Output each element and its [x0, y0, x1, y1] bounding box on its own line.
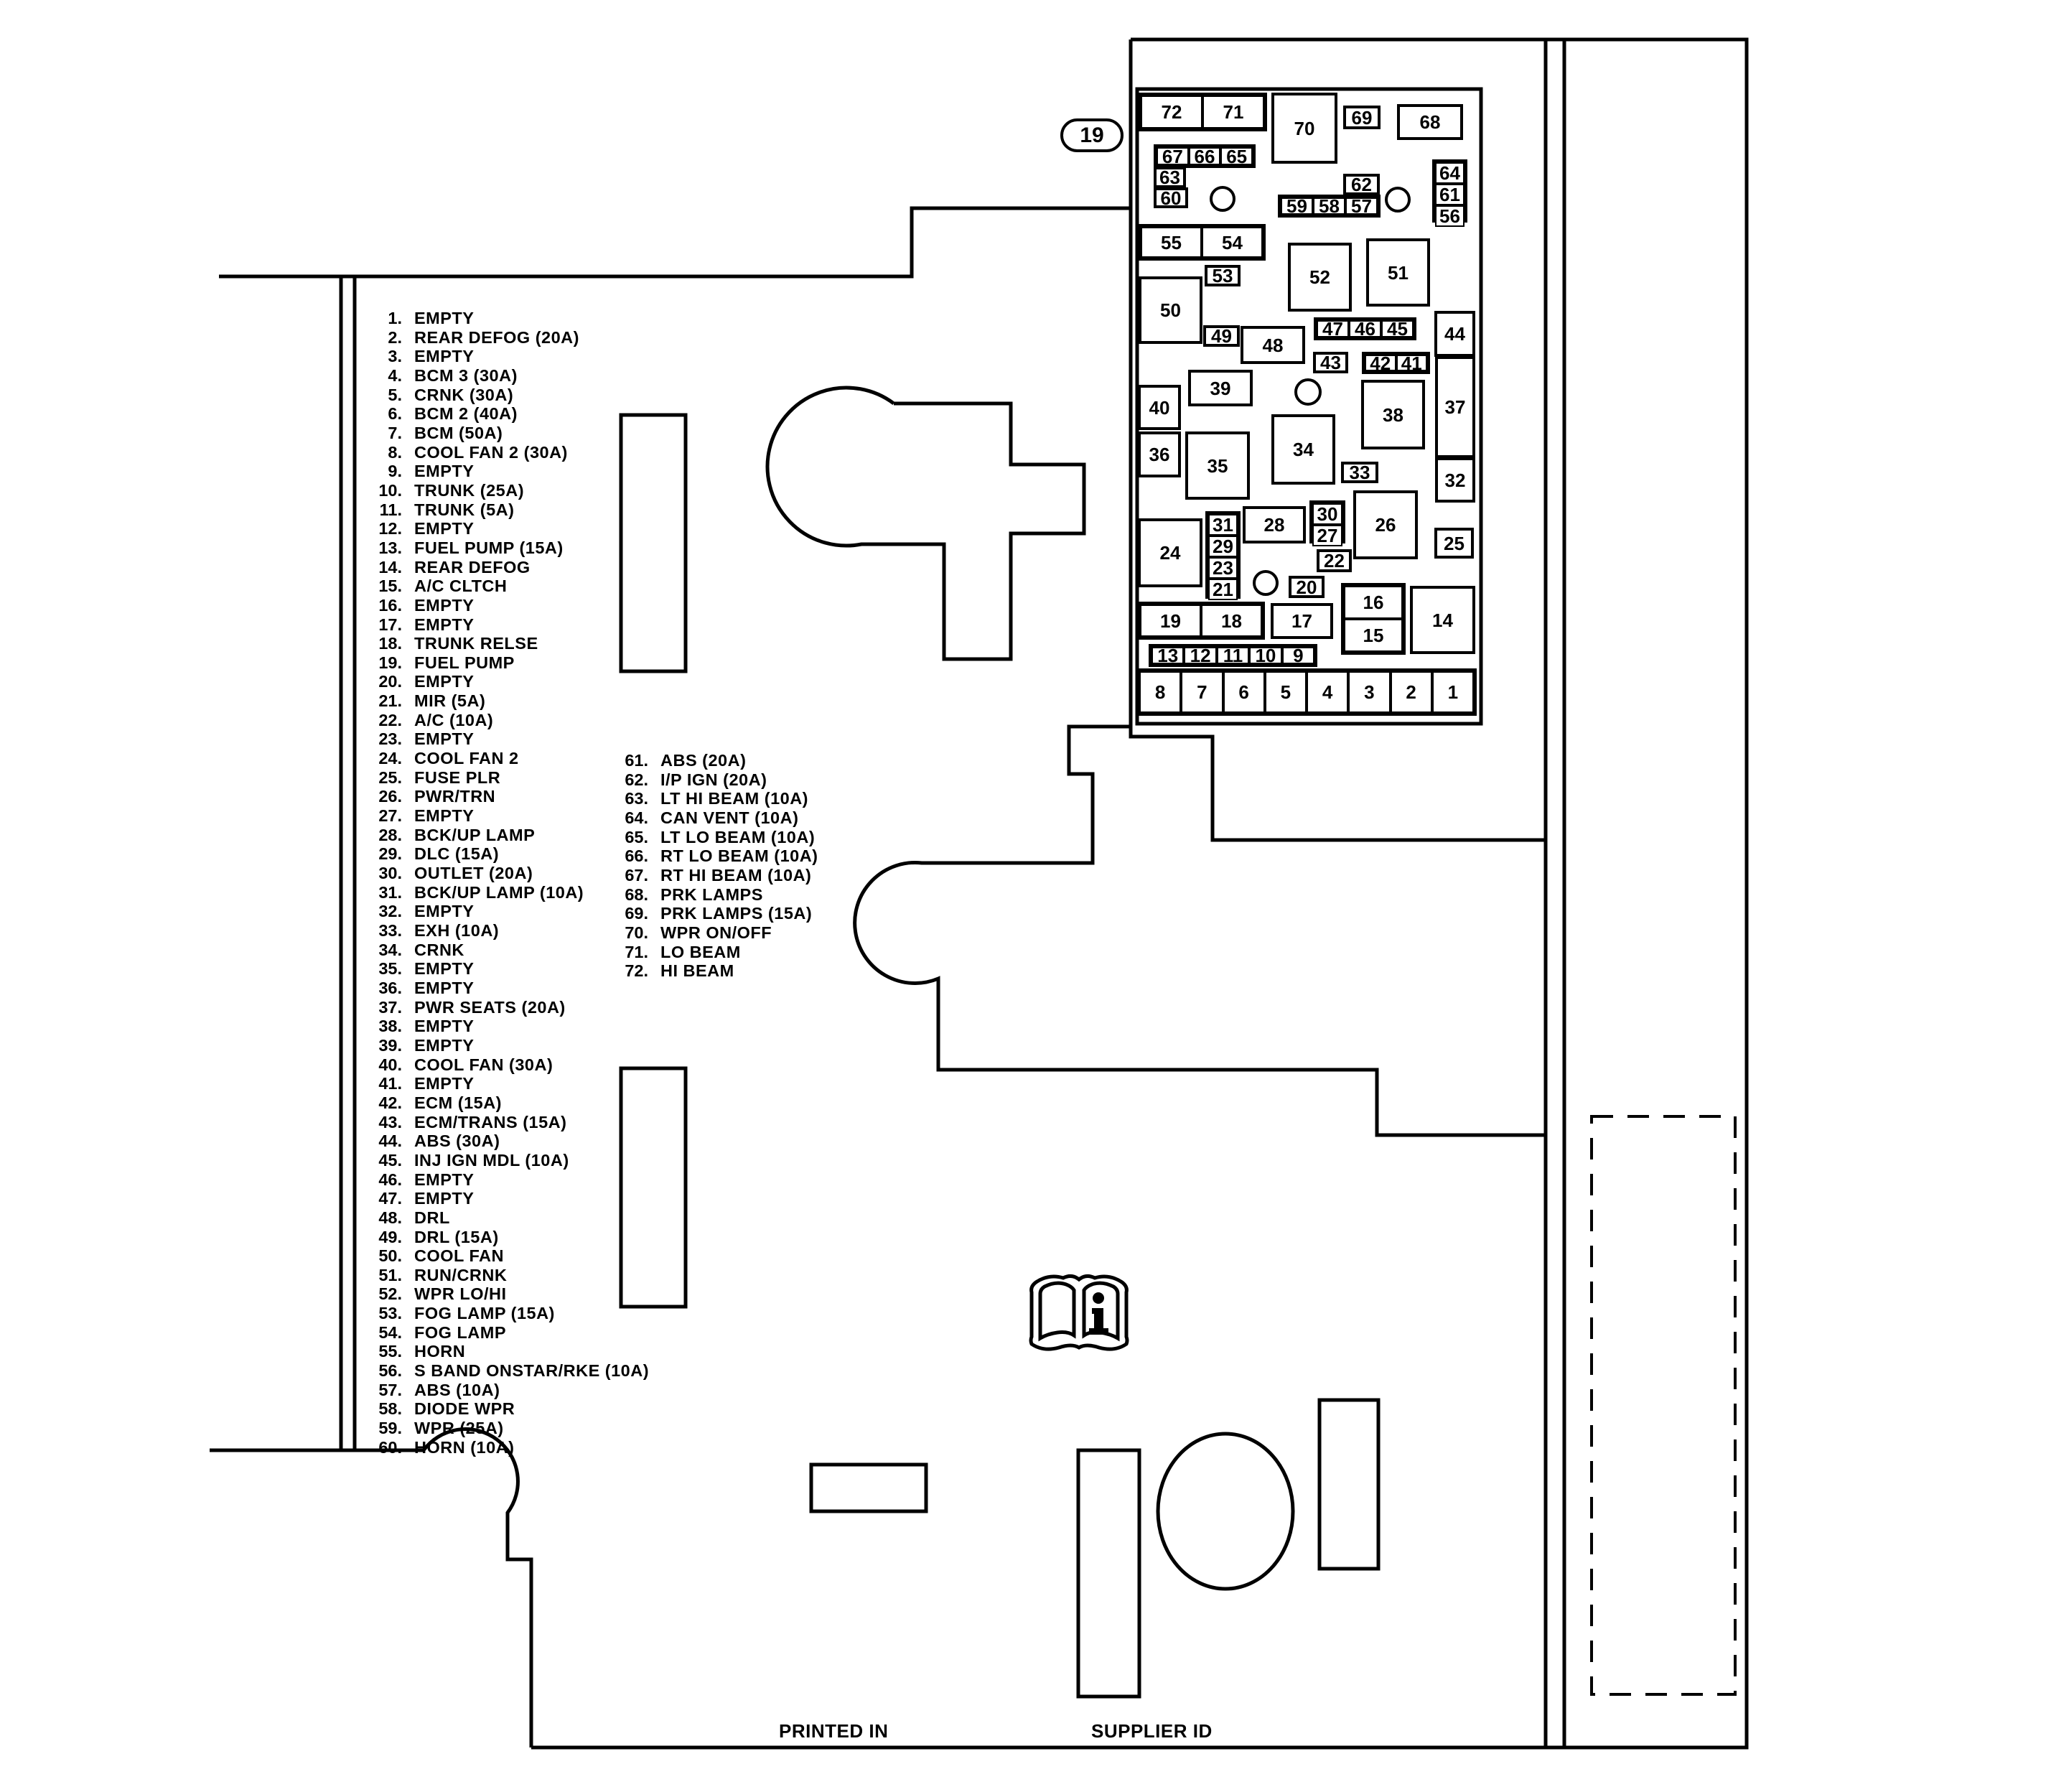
- fuse-71: 71: [1202, 95, 1264, 129]
- legend-item-label: EMPTY: [414, 806, 474, 826]
- legend-item-label: HORN: [414, 1342, 465, 1361]
- legend-item: 36.EMPTY: [363, 979, 649, 998]
- legend-item-number: 51.: [363, 1266, 402, 1285]
- fuse-46: 46: [1349, 320, 1381, 337]
- legend-item-number: 47.: [363, 1189, 402, 1208]
- legend-item: 14.REAR DEFOG: [363, 558, 649, 577]
- legend-item-label: A/C (10A): [414, 711, 493, 730]
- fuse-group: 1918: [1137, 602, 1265, 640]
- legend-item-label: BCM 2 (40A): [414, 404, 518, 424]
- legend-item-label: EMPTY: [414, 902, 474, 921]
- legend-item-label: TRUNK (5A): [414, 500, 514, 520]
- legend-item: 15.A/C CLTCH: [363, 577, 649, 596]
- legend-item-label: EMPTY: [414, 1036, 474, 1055]
- legend-item-label: S BAND ONSTAR/RKE (10A): [414, 1361, 649, 1381]
- legend-item-number: 1.: [363, 309, 402, 328]
- legend-item-number: 36.: [363, 979, 402, 998]
- legend-item: 5.CRNK (30A): [363, 386, 649, 405]
- legend-item-label: ECM (15A): [414, 1093, 502, 1113]
- legend-item: 26.PWR/TRN: [363, 787, 649, 806]
- legend-item-label: TRUNK RELSE: [414, 634, 538, 653]
- legend-item-label: COOL FAN: [414, 1246, 504, 1266]
- fuse-55: 55: [1141, 227, 1202, 258]
- legend-item: 29.DLC (15A): [363, 844, 649, 864]
- legend-item: 53.FOG LAMP (15A): [363, 1304, 649, 1323]
- legend-item-label: HORN (10A): [414, 1438, 514, 1457]
- owners-manual-icon: [1031, 1276, 1127, 1349]
- legend-item: 9.EMPTY: [363, 462, 649, 481]
- legend-item-label: EMPTY: [414, 979, 474, 998]
- fuse-48: 48: [1241, 326, 1305, 364]
- legend-item: 54.FOG LAMP: [363, 1323, 649, 1343]
- legend-item-label: TRUNK (25A): [414, 481, 524, 500]
- fuse-70: 70: [1271, 93, 1337, 164]
- legend-item-label: MIR (5A): [414, 691, 485, 711]
- legend-item: 58.DIODE WPR: [363, 1399, 649, 1419]
- legend-item: 51.RUN/CRNK: [363, 1266, 649, 1285]
- legend-item: 31.BCK/UP LAMP (10A): [363, 883, 649, 902]
- legend-item: 57.ABS (10A): [363, 1381, 649, 1400]
- legend-item-label: CRNK (30A): [414, 386, 513, 405]
- fuse-44: 44: [1434, 311, 1475, 357]
- fuse-38: 38: [1361, 380, 1425, 449]
- fuse-group: 5554: [1138, 224, 1266, 261]
- legend-item: 27.EMPTY: [363, 806, 649, 826]
- legend-item-label: PRK LAMPS: [660, 885, 763, 905]
- legend-item-number: 21.: [363, 691, 402, 711]
- legend-item-number: 33.: [363, 921, 402, 941]
- legend-item-number: 41.: [363, 1074, 402, 1093]
- fuse-60: 60: [1154, 187, 1188, 208]
- legend-item-label: COOL FAN (30A): [414, 1055, 553, 1075]
- fuse-group: 31292321: [1205, 511, 1241, 599]
- legend-item: 66.RT LO BEAM (10A): [609, 846, 818, 866]
- legend-item: 40.COOL FAN (30A): [363, 1055, 649, 1075]
- legend-item-label: EMPTY: [414, 596, 474, 615]
- dashed-service-area: [1592, 1116, 1735, 1694]
- legend-item: 3.EMPTY: [363, 347, 649, 366]
- legend-item: 67.RT HI BEAM (10A): [609, 866, 818, 885]
- legend-item-number: 62.: [609, 770, 648, 790]
- panel-top-edge: [219, 208, 1131, 276]
- fuse-block-diagram-page: 19 1.EMPTY2.REAR DEFOG (20A)3.EMPTY4.BCM…: [0, 0, 2046, 1792]
- legend-item-number: 5.: [363, 386, 402, 405]
- legend-item-label: ABS (20A): [660, 751, 746, 770]
- legend-item-label: EMPTY: [414, 347, 474, 366]
- legend-item-number: 18.: [363, 634, 402, 653]
- fuse-43: 43: [1313, 352, 1348, 373]
- legend-item: 4.BCM 3 (30A): [363, 366, 649, 386]
- legend-item: 37.PWR SEATS (20A): [363, 998, 649, 1017]
- legend-item: 70.WPR ON/OFF: [609, 923, 818, 943]
- legend-item-number: 28.: [363, 826, 402, 845]
- legend-item-number: 13.: [363, 538, 402, 558]
- legend-item: 24.COOL FAN 2: [363, 749, 649, 768]
- legend-item: 8.COOL FAN 2 (30A): [363, 443, 649, 462]
- fuse-33: 33: [1341, 462, 1378, 483]
- legend-item: 38.EMPTY: [363, 1017, 649, 1036]
- legend-item: 12.EMPTY: [363, 519, 649, 538]
- legend-item-number: 25.: [363, 768, 402, 788]
- legend-item-number: 11.: [363, 500, 402, 520]
- fuse-59: 59: [1281, 197, 1313, 215]
- legend-item: 48.DRL: [363, 1208, 649, 1228]
- legend-item: 60.HORN (10A): [363, 1438, 649, 1457]
- legend-item-number: 52.: [363, 1284, 402, 1304]
- legend-item-number: 72.: [609, 961, 648, 981]
- fusebox-mount-hole-icon: [1210, 186, 1235, 212]
- legend-item-label: RT LO BEAM (10A): [660, 846, 818, 866]
- legend-item-label: COOL FAN 2: [414, 749, 519, 768]
- legend-item: 62.I/P IGN (20A): [609, 770, 818, 790]
- legend-item-number: 46.: [363, 1170, 402, 1190]
- fusebox-mount-hole-icon: [1385, 187, 1411, 213]
- legend-item-label: CRNK: [414, 941, 464, 960]
- legend-item-number: 30.: [363, 864, 402, 883]
- legend-item-number: 6.: [363, 404, 402, 424]
- fuse-5: 5: [1265, 671, 1307, 713]
- legend-item-label: HI BEAM: [660, 961, 734, 981]
- legend-item-label: DLC (15A): [414, 844, 499, 864]
- legend-item-number: 63.: [609, 789, 648, 808]
- legend-item: 71.LO BEAM: [609, 943, 818, 962]
- fuse-42: 42: [1365, 355, 1396, 371]
- legend-item: 52.WPR LO/HI: [363, 1284, 649, 1304]
- legend-item-label: A/C CLTCH: [414, 577, 507, 596]
- fuse-72: 72: [1141, 95, 1202, 129]
- fuse-7: 7: [1181, 671, 1223, 713]
- legend-item-label: WPR LO/HI: [414, 1284, 507, 1304]
- legend-item-number: 44.: [363, 1131, 402, 1151]
- fuse-56: 56: [1435, 205, 1465, 227]
- fuse-34: 34: [1271, 414, 1335, 485]
- fusebox-mount-hole-icon: [1294, 378, 1322, 406]
- legend-item: 21.MIR (5A): [363, 691, 649, 711]
- legend-item-label: EMPTY: [414, 672, 474, 691]
- legend-item-label: EMPTY: [414, 1170, 474, 1190]
- fuse-group: 595857: [1278, 195, 1381, 218]
- legend-item: 35.EMPTY: [363, 959, 649, 979]
- legend-item-label: BCM (50A): [414, 424, 503, 443]
- legend-item-label: ABS (30A): [414, 1131, 500, 1151]
- legend-item: 47.EMPTY: [363, 1189, 649, 1208]
- legend-item-label: EMPTY: [414, 615, 474, 635]
- legend-item-number: 61.: [609, 751, 648, 770]
- fuse-47: 47: [1317, 320, 1349, 337]
- fuse-68: 68: [1397, 104, 1463, 140]
- fuse-64: 64: [1435, 162, 1465, 184]
- fusebox-mount-hole-icon: [1253, 570, 1279, 596]
- legend-item-number: 58.: [363, 1399, 402, 1419]
- legend-item-number: 7.: [363, 424, 402, 443]
- fuse-31: 31: [1208, 514, 1238, 536]
- fuse-14: 14: [1410, 586, 1475, 654]
- legend-item-number: 56.: [363, 1361, 402, 1381]
- fuse-22: 22: [1317, 549, 1352, 572]
- legend-item: 17.EMPTY: [363, 615, 649, 635]
- legend-item-number: 40.: [363, 1055, 402, 1075]
- legend-item: 46.EMPTY: [363, 1170, 649, 1190]
- legend-item-number: 71.: [609, 943, 648, 962]
- legend-item-number: 8.: [363, 443, 402, 462]
- legend-item: 43.ECM/TRANS (15A): [363, 1113, 649, 1132]
- fuse-24: 24: [1138, 518, 1202, 587]
- legend-item-label: RUN/CRNK: [414, 1266, 507, 1285]
- legend-item-number: 57.: [363, 1381, 402, 1400]
- fuse-25: 25: [1434, 528, 1474, 559]
- fuse-group: 131211109: [1149, 644, 1317, 667]
- legend-item-number: 68.: [609, 885, 648, 905]
- legend-item-label: CAN VENT (10A): [660, 808, 798, 828]
- legend-item: 23.EMPTY: [363, 729, 649, 749]
- legend-item-label: REAR DEFOG: [414, 558, 531, 577]
- fuse-1: 1: [1432, 671, 1474, 713]
- fuse-8: 8: [1139, 671, 1181, 713]
- legend-item: 30.OUTLET (20A): [363, 864, 649, 883]
- legend-item-number: 50.: [363, 1246, 402, 1266]
- legend-item-label: LT LO BEAM (10A): [660, 828, 815, 847]
- legend-item-label: BCK/UP LAMP (10A): [414, 883, 584, 902]
- legend-item: 11.TRUNK (5A): [363, 500, 649, 520]
- fuse-19: 19: [1140, 605, 1201, 637]
- legend-item-number: 34.: [363, 941, 402, 960]
- fuse-32: 32: [1435, 457, 1475, 503]
- legend-item: 18.TRUNK RELSE: [363, 634, 649, 653]
- fuse-20: 20: [1289, 576, 1325, 598]
- legend-item-number: 55.: [363, 1342, 402, 1361]
- fuse-57: 57: [1345, 197, 1378, 215]
- fuse-21: 21: [1208, 579, 1238, 600]
- fuse-18: 18: [1201, 605, 1262, 637]
- legend-item: 56.S BAND ONSTAR/RKE (10A): [363, 1361, 649, 1381]
- fuse-65: 65: [1220, 147, 1253, 165]
- legend-item-number: 45.: [363, 1151, 402, 1170]
- legend-item-number: 9.: [363, 462, 402, 481]
- legend-item-number: 67.: [609, 866, 648, 885]
- fuse-group: 7271: [1138, 93, 1267, 131]
- legend-item-number: 19.: [363, 653, 402, 673]
- keyhole-cutout-upper: [767, 388, 1084, 659]
- legend-item-number: 43.: [363, 1113, 402, 1132]
- legend-item-label: DRL (15A): [414, 1228, 499, 1247]
- legend-item-number: 10.: [363, 481, 402, 500]
- legend-item: 72.HI BEAM: [609, 961, 818, 981]
- fuse-26: 26: [1353, 490, 1418, 559]
- panel-bottom-left-edge: [210, 1429, 531, 1747]
- legend-item: 64.CAN VENT (10A): [609, 808, 818, 828]
- fuse-45: 45: [1381, 320, 1414, 337]
- legend-item-number: 35.: [363, 959, 402, 979]
- legend-item-number: 39.: [363, 1036, 402, 1055]
- legend-item-label: COOL FAN 2 (30A): [414, 443, 568, 462]
- legend-item-label: EXH (10A): [414, 921, 499, 941]
- legend-item-number: 42.: [363, 1093, 402, 1113]
- fuse-13: 13: [1152, 647, 1184, 664]
- fuse-40: 40: [1138, 385, 1181, 430]
- legend-item-number: 27.: [363, 806, 402, 826]
- legend-item-label: INJ IGN MDL (10A): [414, 1151, 569, 1170]
- legend-item: 28.BCK/UP LAMP: [363, 826, 649, 845]
- mount-hole-circle: [1158, 1434, 1293, 1589]
- legend-item: 7.BCM (50A): [363, 424, 649, 443]
- fuse-group: 4241: [1362, 352, 1430, 374]
- legend-item-label: EMPTY: [414, 1074, 474, 1093]
- legend-item-label: EMPTY: [414, 1189, 474, 1208]
- fuse-62: 62: [1343, 174, 1380, 195]
- legend-item-number: 4.: [363, 366, 402, 386]
- mount-slot-bottom-mid: [1078, 1450, 1139, 1697]
- legend-item: 45.INJ IGN MDL (10A): [363, 1151, 649, 1170]
- legend-item: 55.HORN: [363, 1342, 649, 1361]
- fuse-53: 53: [1205, 265, 1241, 286]
- legend-item: 2.REAR DEFOG (20A): [363, 328, 649, 347]
- fuse-63: 63: [1154, 167, 1186, 188]
- legend-item-number: 15.: [363, 577, 402, 596]
- legend-item-label: ABS (10A): [414, 1381, 500, 1400]
- legend-item-label: WPR (25A): [414, 1419, 504, 1438]
- legend-item: 13.FUEL PUMP (15A): [363, 538, 649, 558]
- fuse-group: 1615: [1341, 583, 1406, 655]
- legend-item-label: EMPTY: [414, 309, 474, 328]
- legend-item-label: LO BEAM: [660, 943, 741, 962]
- legend-item: 20.EMPTY: [363, 672, 649, 691]
- figure-number-callout: 19: [1060, 118, 1124, 152]
- fuse-51: 51: [1366, 238, 1430, 307]
- fuse-52: 52: [1288, 243, 1352, 312]
- legend-item-label: LT HI BEAM (10A): [660, 789, 808, 808]
- legend-item-number: 69.: [609, 904, 648, 923]
- legend-item-number: 29.: [363, 844, 402, 864]
- mount-slot-bottom-right: [1319, 1400, 1378, 1569]
- printed-in-label: PRINTED IN: [779, 1720, 888, 1742]
- legend-item: 50.COOL FAN: [363, 1246, 649, 1266]
- legend-item: 22.A/C (10A): [363, 711, 649, 730]
- legend-item-number: 48.: [363, 1208, 402, 1228]
- legend-item-number: 26.: [363, 787, 402, 806]
- legend-item-label: OUTLET (20A): [414, 864, 533, 883]
- legend-item: 59.WPR (25A): [363, 1419, 649, 1438]
- supplier-id-label: SUPPLIER ID: [1091, 1720, 1213, 1742]
- legend-item: 44.ABS (30A): [363, 1131, 649, 1151]
- legend-item-number: 59.: [363, 1419, 402, 1438]
- legend-item-label: FOG LAMP: [414, 1323, 506, 1343]
- fuse-legend-column-1: 1.EMPTY2.REAR DEFOG (20A)3.EMPTY4.BCM 3 …: [363, 309, 649, 1457]
- legend-item: 42.ECM (15A): [363, 1093, 649, 1113]
- legend-item: 65.LT LO BEAM (10A): [609, 828, 818, 847]
- legend-item: 39.EMPTY: [363, 1036, 649, 1055]
- legend-item-label: EMPTY: [414, 959, 474, 979]
- fuse-15: 15: [1344, 619, 1403, 652]
- legend-item: 16.EMPTY: [363, 596, 649, 615]
- legend-item-label: REAR DEFOG (20A): [414, 328, 579, 347]
- fuse-12: 12: [1184, 647, 1216, 664]
- legend-item: 63.LT HI BEAM (10A): [609, 789, 818, 808]
- fuse-28: 28: [1243, 506, 1306, 543]
- legend-item: 61.ABS (20A): [609, 751, 818, 770]
- legend-item-label: EMPTY: [414, 462, 474, 481]
- legend-item-label: RT HI BEAM (10A): [660, 866, 811, 885]
- legend-item: 32.EMPTY: [363, 902, 649, 921]
- legend-item-number: 32.: [363, 902, 402, 921]
- fuse-legend-column-2: 61.ABS (20A)62.I/P IGN (20A)63.LT HI BEA…: [609, 751, 818, 981]
- legend-item: 19.FUEL PUMP: [363, 653, 649, 673]
- legend-item-label: DIODE WPR: [414, 1399, 515, 1419]
- legend-item-label: FUEL PUMP (15A): [414, 538, 564, 558]
- legend-item: 25.FUSE PLR: [363, 768, 649, 788]
- legend-item-number: 2.: [363, 328, 402, 347]
- fuse-9: 9: [1282, 647, 1314, 664]
- legend-item-label: BCM 3 (30A): [414, 366, 518, 386]
- legend-item-label: EMPTY: [414, 729, 474, 749]
- fuse-3: 3: [1348, 671, 1390, 713]
- fuse-23: 23: [1208, 557, 1238, 579]
- legend-item-label: BCK/UP LAMP: [414, 826, 535, 845]
- legend-item-number: 64.: [609, 808, 648, 828]
- legend-item-number: 24.: [363, 749, 402, 768]
- legend-item-number: 12.: [363, 519, 402, 538]
- legend-item: 1.EMPTY: [363, 309, 649, 328]
- fuse-66: 66: [1189, 147, 1221, 165]
- fuse-49: 49: [1203, 325, 1240, 347]
- fuse-2: 2: [1391, 671, 1432, 713]
- fuse-54: 54: [1202, 227, 1263, 258]
- fuse-27: 27: [1312, 525, 1342, 546]
- fuse-58: 58: [1313, 197, 1345, 215]
- legend-item: 69.PRK LAMPS (15A): [609, 904, 818, 923]
- fuse-39: 39: [1188, 370, 1253, 406]
- fuse-group: 676665: [1154, 144, 1256, 168]
- fuse-group: 3027: [1309, 500, 1345, 543]
- legend-item-number: 22.: [363, 711, 402, 730]
- fuse-10: 10: [1249, 647, 1281, 664]
- fuse-group: 474645: [1314, 317, 1416, 340]
- legend-item-number: 54.: [363, 1323, 402, 1343]
- legend-item-label: EMPTY: [414, 1017, 474, 1036]
- fuse-41: 41: [1396, 355, 1428, 371]
- legend-item-label: FOG LAMP (15A): [414, 1304, 555, 1323]
- legend-item: 68.PRK LAMPS: [609, 885, 818, 905]
- legend-item: 33.EXH (10A): [363, 921, 649, 941]
- fuse-17: 17: [1271, 603, 1333, 639]
- legend-item-number: 37.: [363, 998, 402, 1017]
- fuse-16: 16: [1344, 586, 1403, 619]
- fuse-6: 6: [1223, 671, 1265, 713]
- fuse-61: 61: [1435, 184, 1465, 205]
- legend-item-number: 23.: [363, 729, 402, 749]
- fuse-69: 69: [1343, 106, 1381, 129]
- legend-item-number: 14.: [363, 558, 402, 577]
- legend-item-number: 17.: [363, 615, 402, 635]
- fuse-29: 29: [1208, 536, 1238, 557]
- legend-item: 41.EMPTY: [363, 1074, 649, 1093]
- legend-item-number: 3.: [363, 347, 402, 366]
- fuse-group: 87654321: [1136, 668, 1477, 716]
- panel-outline-artwork: [0, 0, 2046, 1792]
- fuse-67: 67: [1157, 147, 1189, 165]
- legend-item-number: 70.: [609, 923, 648, 943]
- legend-item: 6.BCM 2 (40A): [363, 404, 649, 424]
- mount-slot-bottom-small: [811, 1465, 926, 1511]
- keyhole-cutout-lower: [855, 727, 1546, 1135]
- legend-item: 49.DRL (15A): [363, 1228, 649, 1247]
- legend-item: 34.CRNK: [363, 941, 649, 960]
- fuse-35: 35: [1185, 431, 1250, 500]
- legend-item-label: DRL: [414, 1208, 450, 1228]
- fuse-50: 50: [1139, 276, 1202, 344]
- legend-item-number: 31.: [363, 883, 402, 902]
- legend-item-number: 66.: [609, 846, 648, 866]
- legend-item-label: WPR ON/OFF: [660, 923, 772, 943]
